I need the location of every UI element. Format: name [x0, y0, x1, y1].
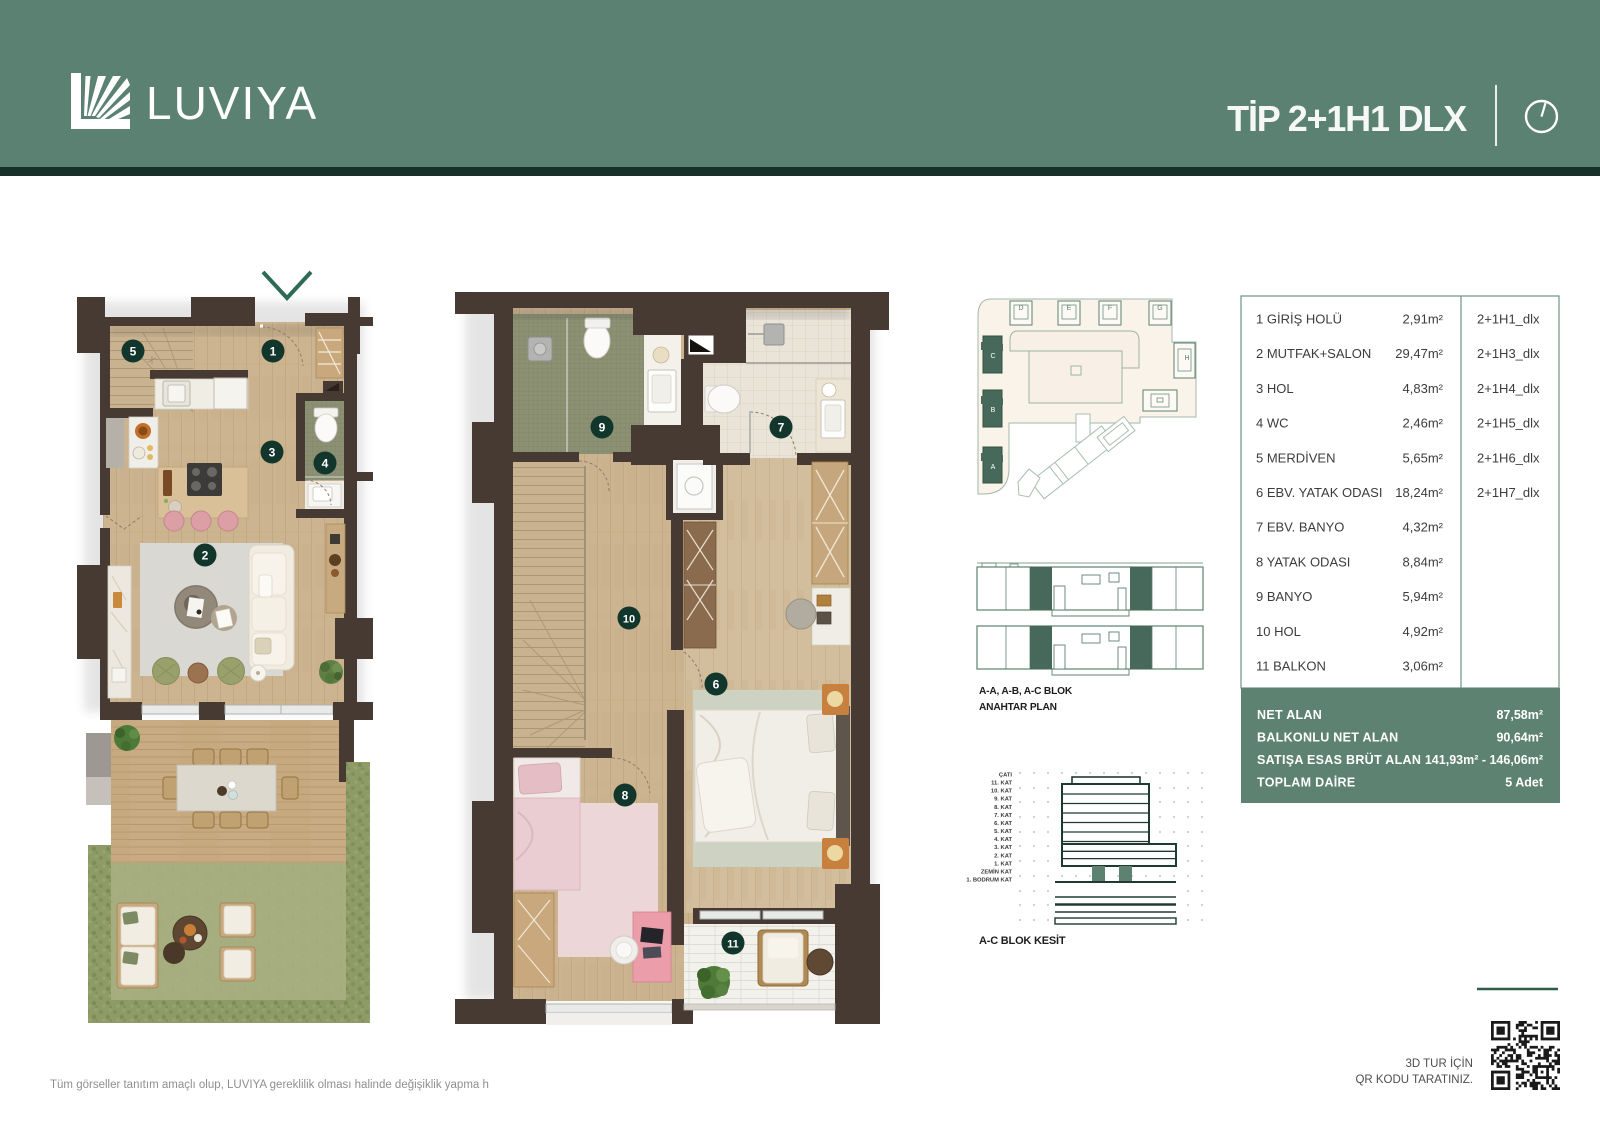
- svg-text:F: F: [1108, 305, 1112, 312]
- svg-text:3,06m²: 3,06m²: [1403, 659, 1444, 674]
- svg-text:ANAHTAR PLAN: ANAHTAR PLAN: [979, 702, 1057, 713]
- svg-text:18,24m²: 18,24m²: [1395, 485, 1443, 500]
- svg-text:5,94m²: 5,94m²: [1403, 589, 1444, 604]
- svg-text:2+1H4_dlx: 2+1H4_dlx: [1477, 381, 1540, 396]
- svg-text:2,46m²: 2,46m²: [1403, 416, 1444, 431]
- svg-text:5 MERDİVEN: 5 MERDİVEN: [1256, 450, 1335, 465]
- svg-text:7. KAT: 7. KAT: [994, 813, 1012, 819]
- svg-text:Tüm görseller tanıtım amaçlı o: Tüm görseller tanıtım amaçlı olup, LUVIY…: [50, 1079, 489, 1091]
- svg-text:3 HOL: 3 HOL: [1256, 381, 1294, 396]
- svg-text:2: 2: [202, 549, 209, 563]
- svg-text:2+1H1_dlx: 2+1H1_dlx: [1477, 312, 1540, 327]
- svg-text:3D TUR İÇİN: 3D TUR İÇİN: [1405, 1057, 1473, 1070]
- svg-text:SATIŞA ESAS BRÜT ALAN: SATIŞA ESAS BRÜT ALAN: [1257, 752, 1421, 767]
- svg-text:4: 4: [322, 457, 329, 471]
- svg-text:5: 5: [130, 345, 137, 359]
- svg-text:6: 6: [713, 678, 720, 692]
- svg-text:8. KAT: 8. KAT: [994, 805, 1012, 811]
- svg-text:8 YATAK ODASI: 8 YATAK ODASI: [1256, 554, 1350, 569]
- svg-text:4,32m²: 4,32m²: [1403, 520, 1444, 535]
- svg-text:8,84m²: 8,84m²: [1403, 554, 1444, 569]
- svg-text:G: G: [1157, 305, 1162, 312]
- svg-text:H: H: [1184, 355, 1189, 362]
- svg-text:7 EBV. BANYO: 7 EBV. BANYO: [1256, 520, 1344, 535]
- svg-text:10: 10: [623, 614, 635, 626]
- svg-text:2+1H3_dlx: 2+1H3_dlx: [1477, 346, 1540, 361]
- svg-text:1. KAT: 1. KAT: [994, 861, 1012, 867]
- svg-text:29,47m²: 29,47m²: [1395, 346, 1443, 361]
- svg-text:2+1H5_dlx: 2+1H5_dlx: [1477, 416, 1540, 431]
- svg-text:11 BALKON: 11 BALKON: [1256, 659, 1326, 674]
- svg-text:TOPLAM DAİRE: TOPLAM DAİRE: [1257, 775, 1356, 790]
- svg-text:D: D: [1018, 305, 1023, 312]
- svg-text:2 MUTFAK+SALON: 2 MUTFAK+SALON: [1256, 346, 1371, 361]
- svg-text:141,93m² - 146,06m²: 141,93m² - 146,06m²: [1425, 753, 1543, 767]
- svg-text:9: 9: [599, 421, 606, 435]
- svg-text:A-C BLOK KESİT: A-C BLOK KESİT: [979, 934, 1066, 947]
- svg-text:BALKONLU NET ALAN: BALKONLU NET ALAN: [1257, 731, 1398, 745]
- svg-text:A: A: [991, 464, 996, 471]
- svg-text:10 HOL: 10 HOL: [1256, 624, 1301, 639]
- svg-text:B: B: [991, 407, 996, 414]
- svg-text:5,65m²: 5,65m²: [1403, 450, 1444, 465]
- svg-text:5. KAT: 5. KAT: [994, 829, 1012, 835]
- svg-text:NET ALAN: NET ALAN: [1257, 708, 1322, 722]
- svg-text:2. KAT: 2. KAT: [994, 853, 1012, 859]
- svg-text:87,58m²: 87,58m²: [1496, 708, 1543, 722]
- svg-text:E: E: [1067, 305, 1072, 312]
- svg-text:11: 11: [727, 939, 739, 951]
- svg-text:90,64m²: 90,64m²: [1496, 731, 1543, 745]
- svg-text:1: 1: [270, 345, 277, 359]
- svg-text:ZEMİN KAT: ZEMİN KAT: [981, 869, 1013, 876]
- svg-text:2,91m²: 2,91m²: [1403, 312, 1444, 327]
- svg-text:1 GİRİŞ HOLÜ: 1 GİRİŞ HOLÜ: [1256, 312, 1342, 327]
- svg-text:C: C: [990, 353, 995, 360]
- svg-text:4,83m²: 4,83m²: [1403, 381, 1444, 396]
- svg-text:8: 8: [622, 789, 629, 803]
- svg-text:11. KAT: 11. KAT: [991, 781, 1012, 787]
- svg-text:6. KAT: 6. KAT: [994, 821, 1012, 827]
- svg-text:10. KAT: 10. KAT: [991, 789, 1013, 795]
- svg-text:9 BANYO: 9 BANYO: [1256, 589, 1312, 604]
- svg-text:4,92m²: 4,92m²: [1403, 624, 1444, 639]
- svg-text:9. KAT: 9. KAT: [994, 797, 1012, 803]
- svg-text:QR KODU TARATINIZ.: QR KODU TARATINIZ.: [1355, 1074, 1473, 1086]
- svg-text:ÇATI: ÇATI: [999, 773, 1012, 779]
- svg-text:3: 3: [269, 446, 276, 460]
- svg-text:6 EBV. YATAK ODASI: 6 EBV. YATAK ODASI: [1256, 485, 1382, 500]
- svg-text:7: 7: [778, 421, 785, 435]
- svg-text:5 Adet: 5 Adet: [1505, 776, 1544, 790]
- svg-text:A-A, A-B, A-C BLOK: A-A, A-B, A-C BLOK: [979, 686, 1073, 697]
- svg-text:4. KAT: 4. KAT: [994, 837, 1012, 843]
- svg-text:3. KAT: 3. KAT: [994, 845, 1012, 851]
- svg-text:2+1H6_dlx: 2+1H6_dlx: [1477, 450, 1540, 465]
- svg-text:2+1H7_dlx: 2+1H7_dlx: [1477, 485, 1540, 500]
- svg-text:1. BODRUM KAT: 1. BODRUM KAT: [966, 878, 1012, 884]
- svg-text:4 WC: 4 WC: [1256, 416, 1289, 431]
